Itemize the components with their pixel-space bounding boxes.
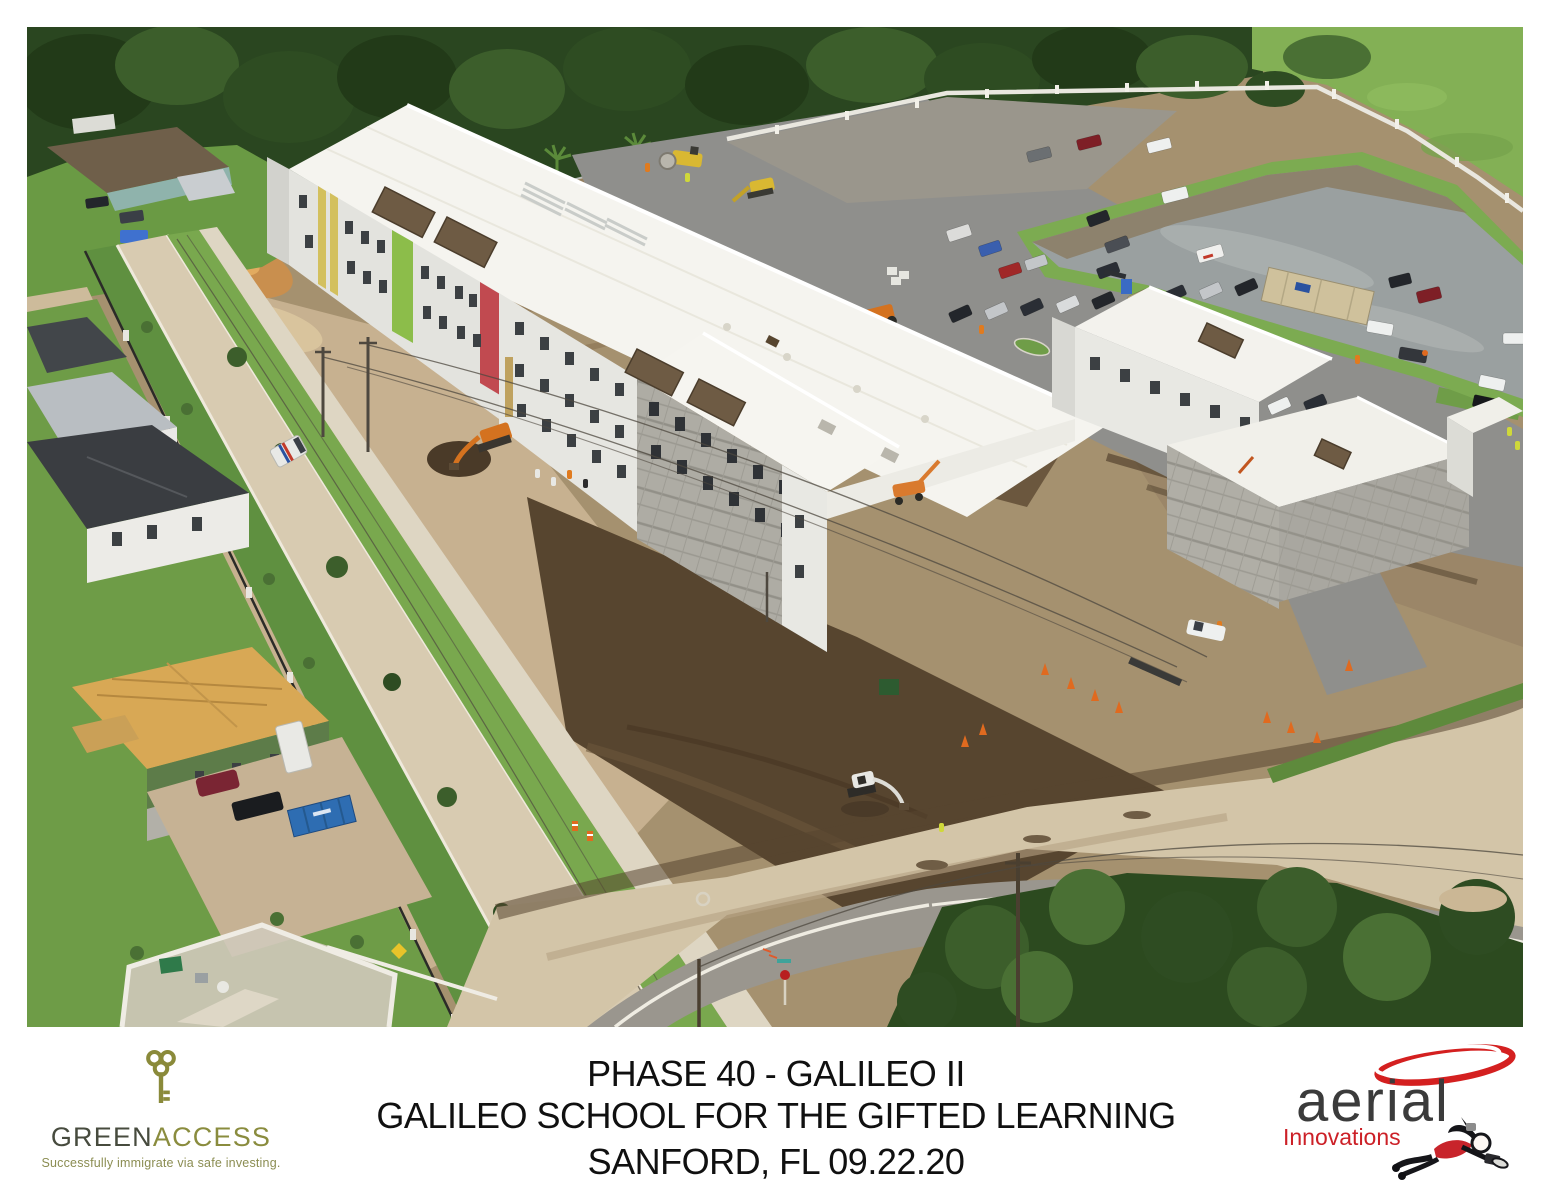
greenaccess-brand-green: GREEN	[51, 1122, 153, 1152]
greenaccess-tagline: Successfully immigrate via safe investin…	[30, 1156, 292, 1170]
photo-caption: PHASE 40 - GALILEO II GALILEO SCHOOL FOR…	[376, 1053, 1176, 1183]
caption-line-2: GALILEO SCHOOL FOR THE GIFTED LEARNING	[376, 1095, 1176, 1137]
porta-potty	[1121, 279, 1132, 294]
accent-stripe-green	[392, 230, 413, 343]
accent-stripe-yellow	[318, 186, 326, 289]
utility-box	[879, 679, 899, 695]
caption-area: GREENACCESS Successfully immigrate via s…	[0, 1027, 1553, 1200]
key-icon	[139, 1045, 183, 1117]
generator	[159, 956, 183, 974]
aerial-innovations-logo: aerial Innovations	[1262, 1033, 1538, 1197]
aerial-photo	[27, 27, 1523, 1027]
progress-photo-page: GREENACCESS Successfully immigrate via s…	[0, 0, 1553, 1200]
caption-line-1: PHASE 40 - GALILEO II	[376, 1053, 1176, 1095]
aerial-photo-illustration	[27, 27, 1523, 1027]
innovations-wordmark: Innovations	[1283, 1124, 1401, 1150]
caption-line-3: SANFORD, FL 09.22.20	[376, 1141, 1176, 1183]
greenaccess-logo: GREENACCESS Successfully immigrate via s…	[30, 1045, 292, 1170]
greenaccess-brand-access: ACCESS	[153, 1122, 271, 1152]
greenaccess-brand: GREENACCESS	[30, 1122, 292, 1153]
